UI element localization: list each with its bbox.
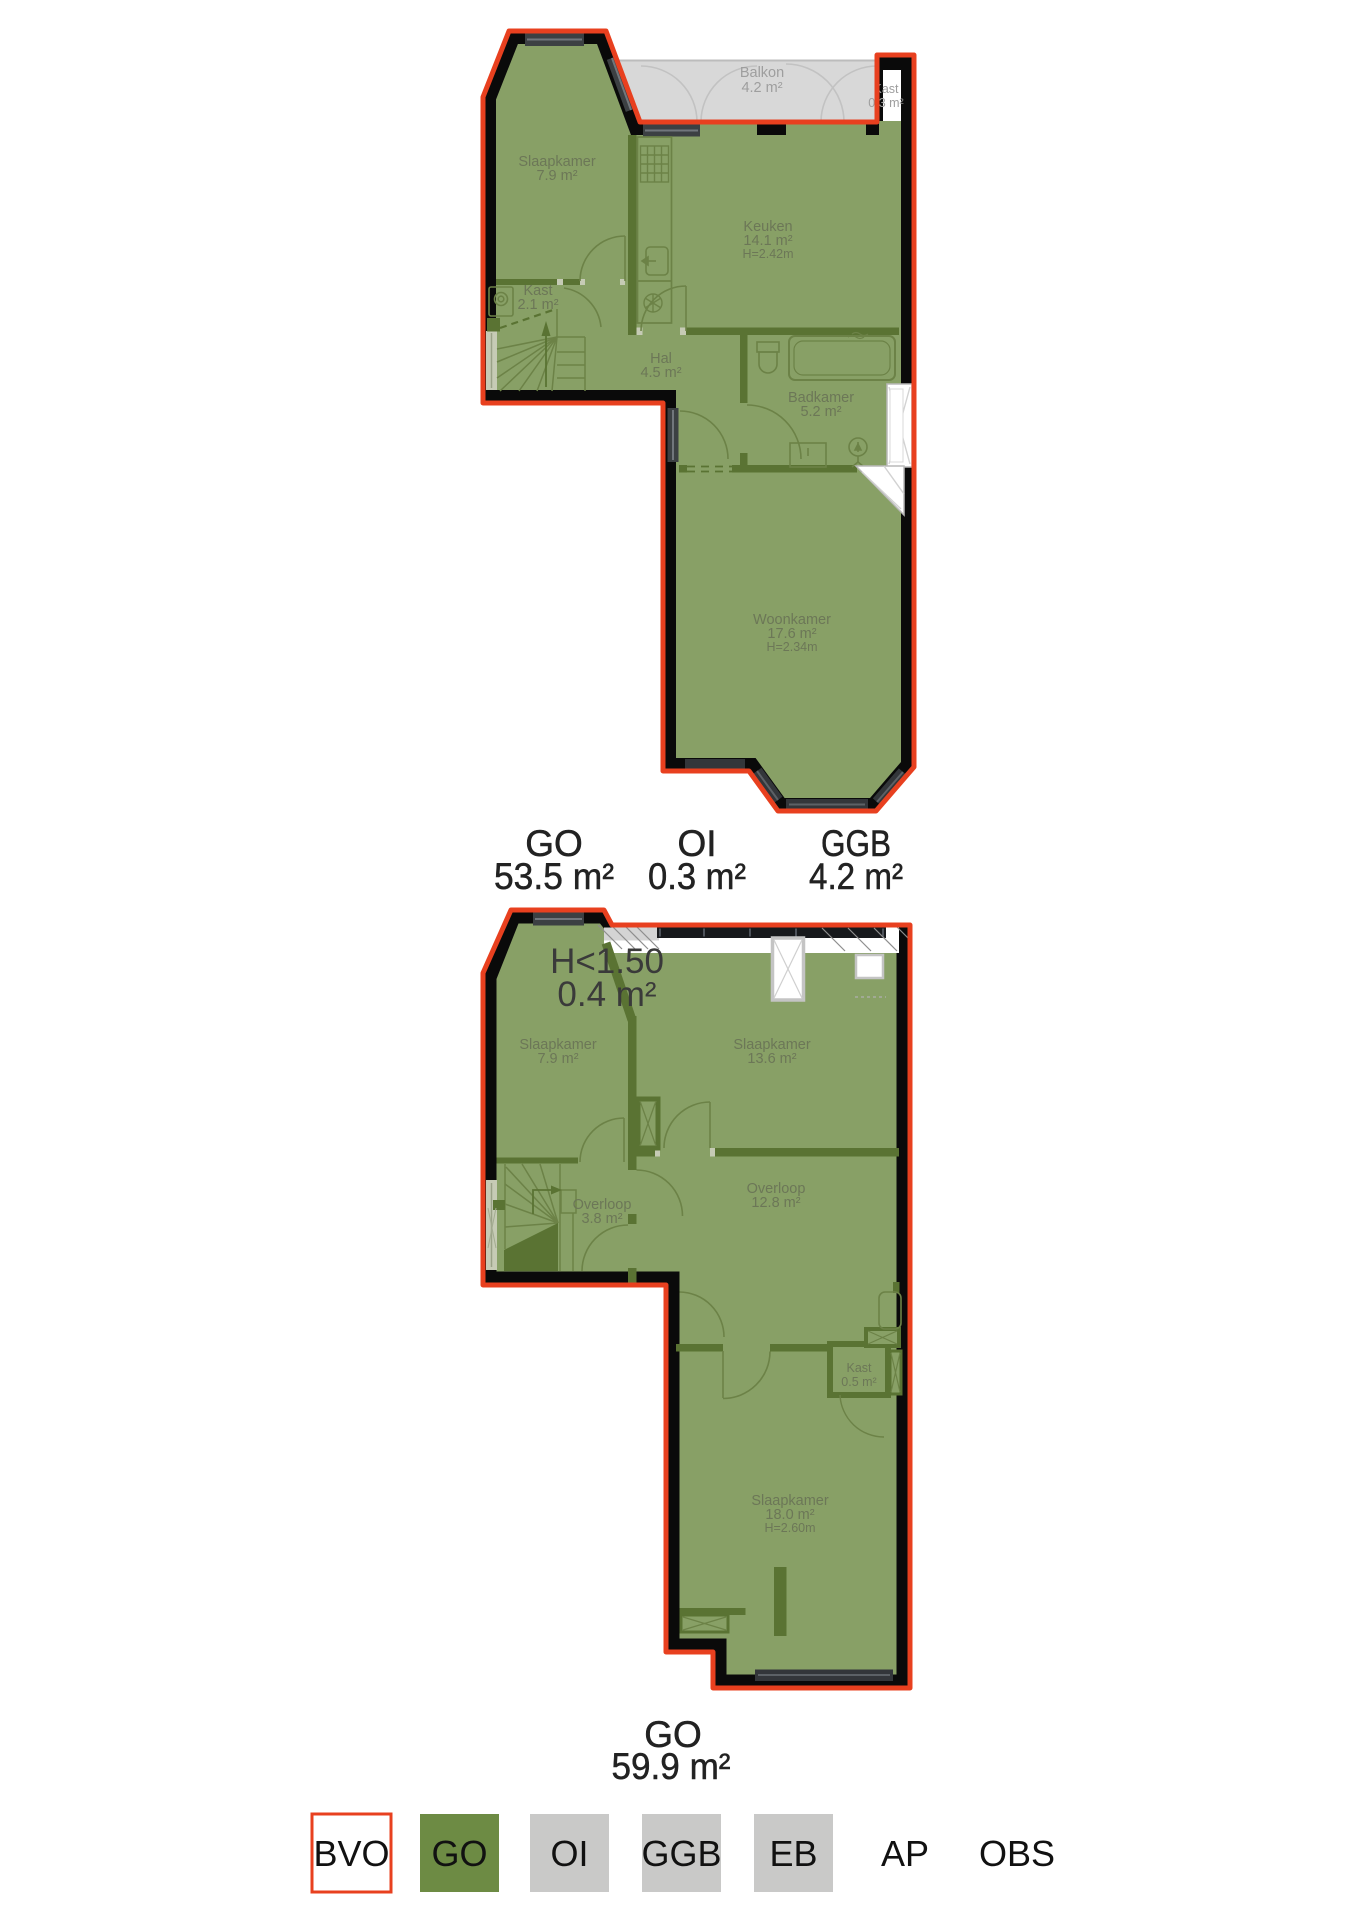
svg-text:0.3 m²: 0.3 m² [648, 856, 746, 897]
svg-text:Kast: Kast [846, 1361, 872, 1375]
svg-text:GGB: GGB [641, 1833, 721, 1874]
svg-text:5.2 m²: 5.2 m² [800, 404, 841, 420]
svg-text:BVO: BVO [313, 1833, 389, 1874]
svg-text:4.2 m²: 4.2 m² [809, 856, 903, 897]
svg-text:7.9 m²: 7.9 m² [537, 1051, 578, 1067]
svg-text:0.3 m²: 0.3 m² [868, 96, 903, 110]
svg-text:AP: AP [881, 1833, 929, 1874]
svg-text:H=2.42m: H=2.42m [742, 247, 793, 261]
svg-text:59.9 m²: 59.9 m² [612, 1746, 731, 1787]
svg-text:3.8 m²: 3.8 m² [581, 1211, 622, 1227]
svg-text:OI: OI [550, 1833, 588, 1874]
svg-text:12.8 m²: 12.8 m² [751, 1195, 800, 1211]
svg-text:EB: EB [769, 1833, 817, 1874]
svg-text:13.6 m²: 13.6 m² [747, 1051, 796, 1067]
svg-text:H=2.34m: H=2.34m [766, 640, 817, 654]
svg-text:4.5 m²: 4.5 m² [640, 365, 681, 381]
svg-text:0.4 m²: 0.4 m² [557, 975, 656, 1014]
svg-text:Balkon: Balkon [740, 65, 784, 81]
svg-text:7.9 m²: 7.9 m² [536, 168, 577, 184]
svg-text:0.5 m²: 0.5 m² [841, 1375, 876, 1389]
svg-text:GO: GO [431, 1833, 487, 1874]
svg-text:2.1 m²: 2.1 m² [517, 297, 558, 313]
svg-text:4.2 m²: 4.2 m² [741, 80, 782, 96]
svg-text:53.5 m²: 53.5 m² [494, 856, 614, 897]
svg-text:H=2.60m: H=2.60m [764, 1521, 815, 1535]
svg-text:OBS: OBS [979, 1833, 1055, 1874]
